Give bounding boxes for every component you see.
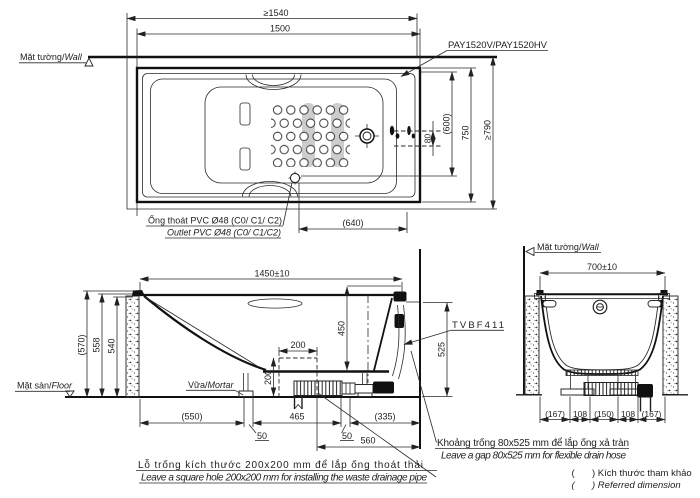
end-view: Mặt tường/Wall 700±10 (516, 242, 688, 423)
end-corrugated-pipe (584, 383, 638, 396)
outlet-note-en: Outlet PVC Ø48 (C0/ C1/C2) (167, 228, 281, 238)
dim-length: 1500 (270, 24, 290, 34)
installation-drawing: Mặt tường/Wall ≥1540 1500 PAY1520V/PAY15… (0, 0, 700, 498)
end-elbow (637, 384, 653, 398)
headrest-arc-top-inner (253, 75, 295, 86)
tub-front-slope (374, 298, 392, 371)
downpipe-break-icon (295, 405, 303, 410)
dim-side-length: 1450±10 (255, 269, 290, 279)
headrest-arc-bottom-inner (249, 186, 291, 197)
dim-e5: (167) (642, 409, 662, 419)
dim-e2: 108 (573, 409, 587, 419)
g1-leader (249, 425, 256, 434)
dim-h-overflow: 450 (337, 321, 347, 336)
pin-right (648, 301, 661, 308)
dim-inner-width: (600) (442, 113, 452, 134)
fitting-mark-3 (407, 126, 411, 135)
pipe-coupling (342, 383, 355, 394)
gap-note-en: Leave a gap 80x525 mm for flexible drain… (441, 451, 626, 462)
dim-hole-h: 200 (263, 370, 273, 385)
support-wall-left (126, 296, 139, 397)
ref-paren-en: ( (572, 480, 576, 491)
drawing-page: Mặt tường/Wall ≥1540 1500 PAY1520V/PAY15… (0, 0, 700, 498)
overflow-hole-symbol (289, 172, 302, 185)
hole-note-en: Leave a square hole 200x200 mm for insta… (141, 473, 427, 484)
plan-view: Mặt tường/Wall ≥1540 1500 PAY1520V/PAY15… (19, 8, 548, 238)
dim-h-rim: 558 (92, 337, 102, 352)
dim-overall-length: ≥1540 (264, 8, 289, 18)
dim-e4: 108 (621, 409, 635, 419)
dim-h-ref: (570) (77, 334, 87, 355)
fitting-mark-2 (396, 133, 400, 138)
ref-note-vi: ) Kích thước tham khảo (592, 468, 692, 479)
mortar-label: Vữa/Mortar (188, 380, 235, 390)
ref-note-en: ) Referred dimension (591, 480, 681, 491)
gap-note-vi: Khoảng trống 80x525 mm để lắp ống xả trà… (437, 436, 629, 449)
drain-symbol (355, 124, 379, 148)
pin-left (543, 301, 556, 308)
outlet-leader (283, 183, 292, 226)
end-wall-left (525, 296, 539, 395)
floor-label: Mặt sàn/Floor (17, 381, 73, 391)
dim-hole-w: 200 (290, 340, 305, 350)
dim-d2: 465 (289, 412, 304, 422)
antislip-dots (271, 103, 350, 167)
fitting-mark-4 (412, 134, 415, 139)
end-tub-bottom-tread (566, 370, 638, 376)
dim-deck-offset: 80 (423, 134, 433, 144)
model-label: PAY1520V/PAY1520HV (448, 40, 548, 51)
overflow-head (394, 292, 407, 302)
ref-paren-vi: ( (572, 468, 576, 479)
apron-grip-slot (248, 299, 302, 308)
end-overflow-symbol (593, 300, 607, 314)
armrest-slot-2 (240, 148, 250, 170)
dim-outlet-offset: (640) (342, 218, 363, 228)
hose-elbow (373, 382, 394, 394)
dim-d4: 560 (360, 436, 375, 446)
end-wall-right (663, 296, 678, 395)
dim-width: 750 (461, 125, 471, 140)
armrest-slot-1 (240, 103, 250, 125)
dim-d3: (335) (374, 412, 395, 422)
dim-overall-width: ≥790 (483, 120, 493, 140)
dim-h-inner: 540 (107, 338, 117, 353)
model-leader (401, 51, 447, 77)
plan-wall-marker-icon (85, 58, 93, 66)
dim-g1: 50 (257, 431, 267, 441)
dim-d1: (550) (181, 412, 202, 422)
end-wall-marker-icon (526, 248, 534, 256)
dim-e3: (150) (594, 409, 614, 419)
waste-pipe (355, 385, 373, 394)
dim-g2: 50 (342, 431, 352, 441)
tub-back-slope-inner (146, 298, 258, 367)
dim-e1: (167) (545, 409, 565, 419)
outlet-note-vi: Ống thoát PVC Ø48 (C0/ C1/ C2) (148, 215, 282, 226)
valve-label: TVBF411 (452, 320, 504, 331)
end-wall-label: Mặt tường/Wall (537, 242, 600, 252)
fitting-mark-1 (390, 126, 394, 136)
plan-wall-label: Mặt tường/Wall (20, 52, 83, 62)
dim-gap-h: 525 (437, 342, 447, 357)
dim-end-width: 700±10 (587, 262, 617, 272)
hole-note-vi: Lỗ trống kích thước 200x200 mm để lắp ốn… (138, 458, 423, 471)
